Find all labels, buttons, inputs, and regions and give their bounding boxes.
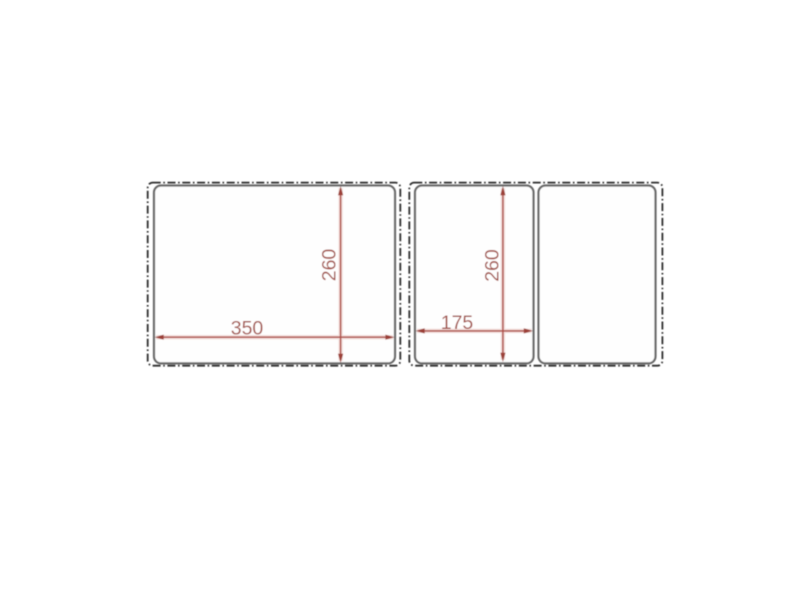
- svg-text:175: 175: [441, 312, 474, 334]
- svg-text:260: 260: [481, 249, 503, 282]
- svg-text:260: 260: [319, 249, 341, 282]
- svg-text:350: 350: [231, 318, 264, 340]
